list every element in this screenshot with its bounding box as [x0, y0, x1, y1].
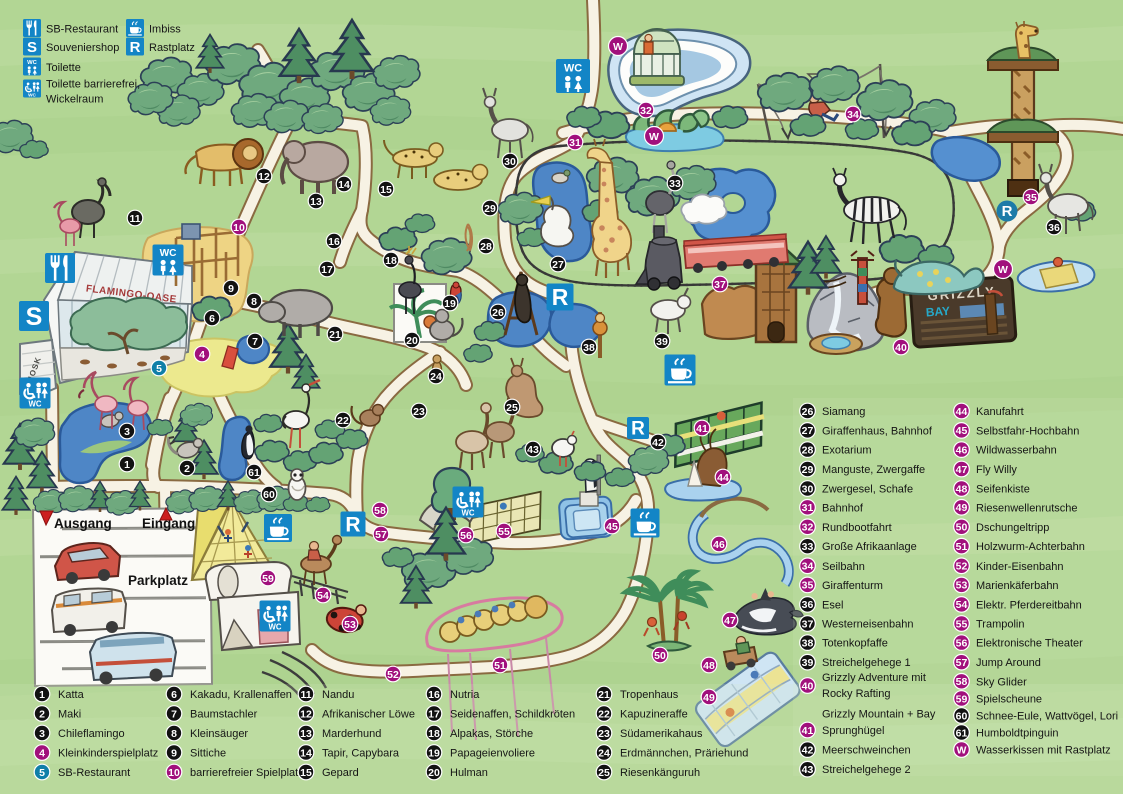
svg-text:27: 27	[552, 259, 564, 271]
svg-text:18: 18	[385, 255, 397, 267]
svg-text:56: 56	[956, 637, 968, 649]
svg-text:41: 41	[802, 725, 814, 737]
svg-text:Sprunghügel: Sprunghügel	[822, 725, 884, 737]
svg-text:2: 2	[184, 463, 190, 475]
svg-text:35: 35	[802, 580, 814, 592]
svg-text:40: 40	[895, 342, 907, 354]
svg-text:Siamang: Siamang	[822, 406, 865, 418]
svg-text:5: 5	[39, 767, 45, 779]
svg-text:3: 3	[124, 426, 130, 438]
svg-text:Wickelraum: Wickelraum	[46, 94, 103, 106]
svg-text:Westerneisenbahn: Westerneisenbahn	[822, 619, 914, 631]
svg-text:Humboldtpinguin: Humboldtpinguin	[976, 728, 1059, 740]
svg-text:48: 48	[956, 483, 968, 495]
svg-text:47: 47	[724, 615, 736, 627]
svg-text:14: 14	[300, 747, 312, 759]
svg-text:24: 24	[598, 747, 610, 759]
svg-text:1: 1	[39, 689, 45, 701]
svg-text:Giraffenhaus, Bahnhof: Giraffenhaus, Bahnhof	[822, 425, 933, 437]
svg-text:28: 28	[480, 241, 492, 253]
svg-text:Rocky Rafting: Rocky Rafting	[822, 688, 890, 700]
svg-text:54: 54	[956, 599, 968, 611]
svg-text:Parkplatz: Parkplatz	[128, 573, 188, 588]
svg-text:Maki: Maki	[58, 709, 81, 721]
svg-text:44: 44	[717, 472, 729, 484]
svg-text:25: 25	[598, 767, 610, 779]
svg-text:51: 51	[956, 541, 968, 553]
svg-text:Rundbootfahrt: Rundbootfahrt	[822, 522, 892, 534]
svg-text:17: 17	[428, 708, 440, 720]
svg-text:34: 34	[802, 561, 814, 573]
svg-text:37: 37	[802, 618, 814, 630]
svg-text:Rastplatz: Rastplatz	[149, 42, 195, 54]
svg-text:49: 49	[956, 502, 968, 514]
svg-text:Große Afrikaanlage: Große Afrikaanlage	[822, 541, 917, 553]
svg-text:27: 27	[802, 425, 814, 437]
svg-text:31: 31	[802, 502, 814, 514]
svg-text:Elektr. Pferdereitbahn: Elektr. Pferdereitbahn	[976, 599, 1082, 611]
svg-text:Erdmännchen, Präriehund: Erdmännchen, Präriehund	[620, 748, 748, 760]
svg-text:58: 58	[374, 505, 386, 517]
svg-text:Exotarium: Exotarium	[822, 445, 872, 457]
svg-text:Jump Around: Jump Around	[976, 657, 1041, 669]
svg-text:barrierefreier Spielplatz: barrierefreier Spielplatz	[190, 767, 304, 779]
svg-text:Imbiss: Imbiss	[149, 24, 181, 36]
svg-text:Kakadu, Krallenaffen: Kakadu, Krallenaffen	[190, 689, 292, 701]
svg-text:42: 42	[652, 437, 664, 449]
svg-text:20: 20	[406, 335, 418, 347]
svg-text:Kinder-Eisenbahn: Kinder-Eisenbahn	[976, 561, 1063, 573]
svg-text:Bahnhof: Bahnhof	[822, 502, 864, 514]
svg-text:30: 30	[802, 483, 814, 495]
svg-text:23: 23	[598, 728, 610, 740]
svg-text:2: 2	[39, 708, 45, 720]
svg-text:59: 59	[956, 693, 968, 705]
svg-text:25: 25	[506, 402, 518, 414]
svg-text:Kapuzineraffe: Kapuzineraffe	[620, 709, 688, 721]
svg-text:59: 59	[262, 573, 274, 585]
svg-text:Riesenwellenrutsche: Riesenwellenrutsche	[976, 502, 1078, 514]
svg-text:9: 9	[171, 747, 177, 759]
svg-text:S: S	[27, 39, 37, 56]
svg-text:60: 60	[263, 489, 275, 501]
svg-text:10: 10	[233, 222, 245, 234]
svg-text:8: 8	[171, 728, 177, 740]
svg-text:Südamerikahaus: Südamerikahaus	[620, 728, 703, 740]
svg-text:33: 33	[802, 541, 814, 553]
svg-text:Kleinsäuger: Kleinsäuger	[190, 728, 248, 740]
svg-text:3: 3	[39, 728, 45, 740]
svg-text:53: 53	[956, 580, 968, 592]
svg-text:Dschungeltripp: Dschungeltripp	[976, 522, 1049, 534]
svg-text:15: 15	[300, 767, 312, 779]
svg-text:Holzwurm-Achterbahn: Holzwurm-Achterbahn	[976, 541, 1085, 553]
svg-text:50: 50	[956, 522, 968, 534]
svg-text:55: 55	[498, 526, 510, 538]
svg-text:Zwergesel, Schafe: Zwergesel, Schafe	[822, 484, 913, 496]
svg-text:Trampolin: Trampolin	[976, 619, 1025, 631]
svg-text:53: 53	[344, 619, 356, 631]
svg-text:Eingang: Eingang	[142, 516, 195, 531]
svg-text:52: 52	[956, 561, 968, 573]
svg-text:15: 15	[380, 184, 392, 196]
svg-text:35: 35	[1025, 192, 1037, 204]
svg-text:41: 41	[696, 423, 708, 435]
svg-text:16: 16	[328, 236, 340, 248]
svg-text:Grizzly Adventure mit: Grizzly Adventure mit	[822, 672, 926, 684]
svg-text:19: 19	[444, 298, 456, 310]
svg-text:Marienkäferbahn: Marienkäferbahn	[976, 580, 1059, 592]
svg-text:38: 38	[583, 342, 595, 354]
svg-text:Gepard: Gepard	[322, 767, 359, 779]
svg-text:28: 28	[802, 444, 814, 456]
svg-text:R: R	[130, 39, 141, 56]
svg-text:26: 26	[492, 307, 504, 319]
svg-text:Toilette: Toilette	[46, 62, 81, 74]
svg-text:Streichelgehege 1: Streichelgehege 1	[822, 657, 911, 669]
svg-text:50: 50	[654, 650, 666, 662]
svg-text:43: 43	[802, 764, 814, 776]
svg-text:26: 26	[802, 406, 814, 418]
svg-text:23: 23	[413, 406, 425, 418]
svg-text:SB-Restaurant: SB-Restaurant	[58, 767, 130, 779]
svg-text:Souveniershop: Souveniershop	[46, 42, 119, 54]
svg-text:60: 60	[956, 710, 968, 722]
svg-text:Hulman: Hulman	[450, 767, 488, 779]
svg-text:Kleinkinderspielplatz: Kleinkinderspielplatz	[58, 748, 158, 760]
svg-text:61: 61	[248, 467, 260, 479]
svg-text:54: 54	[317, 590, 329, 602]
svg-text:Ausgang: Ausgang	[54, 516, 112, 531]
svg-text:6: 6	[171, 689, 177, 701]
svg-text:13: 13	[300, 728, 312, 740]
svg-text:Nutria: Nutria	[450, 689, 480, 701]
svg-text:4: 4	[39, 747, 45, 759]
svg-text:32: 32	[802, 522, 814, 534]
svg-text:12: 12	[300, 708, 312, 720]
svg-text:21: 21	[598, 689, 610, 701]
svg-text:57: 57	[956, 657, 968, 669]
svg-text:32: 32	[640, 105, 652, 117]
svg-text:SB-Restaurant: SB-Restaurant	[46, 24, 118, 36]
svg-text:38: 38	[802, 637, 814, 649]
svg-text:Grizzly Mountain + Bay: Grizzly Mountain + Bay	[822, 709, 936, 721]
svg-text:42: 42	[802, 744, 814, 756]
svg-text:Giraffenturm: Giraffenturm	[822, 580, 883, 592]
svg-text:46: 46	[713, 539, 725, 551]
svg-text:36: 36	[802, 599, 814, 611]
svg-text:5: 5	[156, 363, 162, 375]
svg-text:16: 16	[428, 689, 440, 701]
svg-text:9: 9	[228, 283, 234, 295]
svg-text:Sittiche: Sittiche	[190, 748, 226, 760]
svg-text:21: 21	[329, 329, 341, 341]
svg-text:W: W	[649, 131, 659, 143]
svg-text:56: 56	[460, 530, 472, 542]
svg-text:6: 6	[209, 313, 215, 325]
svg-text:Streichelgehege 2: Streichelgehege 2	[822, 764, 911, 776]
svg-text:55: 55	[956, 618, 968, 630]
svg-text:Elektronische Theater: Elektronische Theater	[976, 638, 1083, 650]
svg-text:1: 1	[124, 459, 130, 471]
svg-text:13: 13	[310, 196, 322, 208]
svg-text:49: 49	[703, 692, 715, 704]
svg-text:Tropenhaus: Tropenhaus	[620, 689, 679, 701]
svg-text:57: 57	[375, 529, 387, 541]
svg-text:Meerschweinchen: Meerschweinchen	[822, 745, 911, 757]
svg-text:BAY: BAY	[925, 304, 950, 320]
svg-text:34: 34	[847, 109, 859, 121]
svg-text:11: 11	[300, 689, 311, 701]
svg-text:Marderhund: Marderhund	[322, 728, 381, 740]
svg-text:Esel: Esel	[822, 599, 843, 611]
svg-text:19: 19	[428, 747, 440, 759]
svg-text:8: 8	[251, 296, 257, 308]
svg-text:36: 36	[1048, 222, 1060, 234]
svg-text:S: S	[26, 303, 43, 331]
svg-text:51: 51	[494, 660, 506, 672]
svg-text:Seifenkiste: Seifenkiste	[976, 484, 1030, 496]
svg-text:52: 52	[387, 669, 399, 681]
svg-text:39: 39	[656, 336, 668, 348]
svg-text:44: 44	[956, 406, 968, 418]
svg-text:Chileflamingo: Chileflamingo	[58, 728, 125, 740]
svg-text:22: 22	[598, 708, 610, 720]
svg-text:24: 24	[430, 371, 442, 383]
svg-text:Wildwasserbahn: Wildwasserbahn	[976, 445, 1057, 457]
svg-text:31: 31	[569, 137, 581, 149]
svg-text:R: R	[345, 514, 360, 537]
svg-text:45: 45	[606, 521, 618, 533]
svg-text:Spielscheune: Spielscheune	[976, 694, 1042, 706]
svg-text:45: 45	[956, 425, 968, 437]
svg-text:7: 7	[252, 336, 258, 348]
svg-text:11: 11	[129, 213, 140, 225]
svg-text:Toilette barrierefrei,: Toilette barrierefrei,	[46, 79, 140, 91]
svg-text:39: 39	[802, 657, 814, 669]
svg-text:Sky Glider: Sky Glider	[976, 676, 1027, 688]
svg-text:17: 17	[321, 264, 333, 276]
svg-text:29: 29	[484, 203, 496, 215]
svg-text:12: 12	[258, 171, 270, 183]
svg-text:Totenkopfaffe: Totenkopfaffe	[822, 638, 888, 650]
svg-text:40: 40	[802, 680, 814, 692]
svg-text:Alpakas, Störche: Alpakas, Störche	[450, 728, 533, 740]
svg-text:Manguste, Zwergaffe: Manguste, Zwergaffe	[822, 464, 925, 476]
svg-text:W: W	[998, 264, 1008, 276]
svg-text:W: W	[957, 744, 967, 756]
svg-text:61: 61	[956, 727, 968, 739]
svg-text:Afrikanischer Löwe: Afrikanischer Löwe	[322, 709, 415, 721]
svg-text:Wasserkissen mit Rastplatz: Wasserkissen mit Rastplatz	[976, 745, 1111, 757]
svg-text:Schnee-Eule, Wattvögel, Lori: Schnee-Eule, Wattvögel, Lori	[976, 711, 1118, 723]
svg-text:14: 14	[338, 179, 350, 191]
svg-text:20: 20	[428, 767, 440, 779]
svg-text:4: 4	[199, 349, 205, 361]
svg-text:Nandu: Nandu	[322, 689, 354, 701]
svg-text:Seidenaffen, Schildkröten: Seidenaffen, Schildkröten	[450, 709, 575, 721]
svg-text:43: 43	[527, 444, 539, 456]
svg-text:Riesenkänguruh: Riesenkänguruh	[620, 767, 700, 779]
svg-text:Tapir, Capybara: Tapir, Capybara	[322, 748, 400, 760]
svg-text:30: 30	[504, 156, 516, 168]
svg-text:Selbstfahr-Hochbahn: Selbstfahr-Hochbahn	[976, 425, 1079, 437]
svg-text:33: 33	[669, 178, 681, 190]
svg-text:R: R	[1002, 203, 1013, 220]
svg-text:58: 58	[956, 676, 968, 688]
svg-text:R: R	[552, 284, 569, 310]
svg-text:Seilbahn: Seilbahn	[822, 561, 865, 573]
svg-text:48: 48	[703, 660, 715, 672]
svg-text:10: 10	[168, 767, 180, 779]
svg-text:22: 22	[337, 415, 349, 427]
svg-text:Fly Willy: Fly Willy	[976, 464, 1017, 476]
svg-text:Kanufahrt: Kanufahrt	[976, 406, 1024, 418]
svg-text:Baumstachler: Baumstachler	[190, 709, 258, 721]
svg-text:29: 29	[802, 464, 814, 476]
svg-text:7: 7	[171, 708, 177, 720]
svg-text:W: W	[613, 41, 623, 53]
svg-text:46: 46	[956, 444, 968, 456]
svg-text:47: 47	[956, 464, 968, 476]
svg-text:Katta: Katta	[58, 689, 85, 701]
svg-text:37: 37	[714, 279, 726, 291]
svg-text:R: R	[631, 419, 645, 440]
svg-text:18: 18	[428, 728, 440, 740]
svg-text:Papageienvoliere: Papageienvoliere	[450, 748, 535, 760]
